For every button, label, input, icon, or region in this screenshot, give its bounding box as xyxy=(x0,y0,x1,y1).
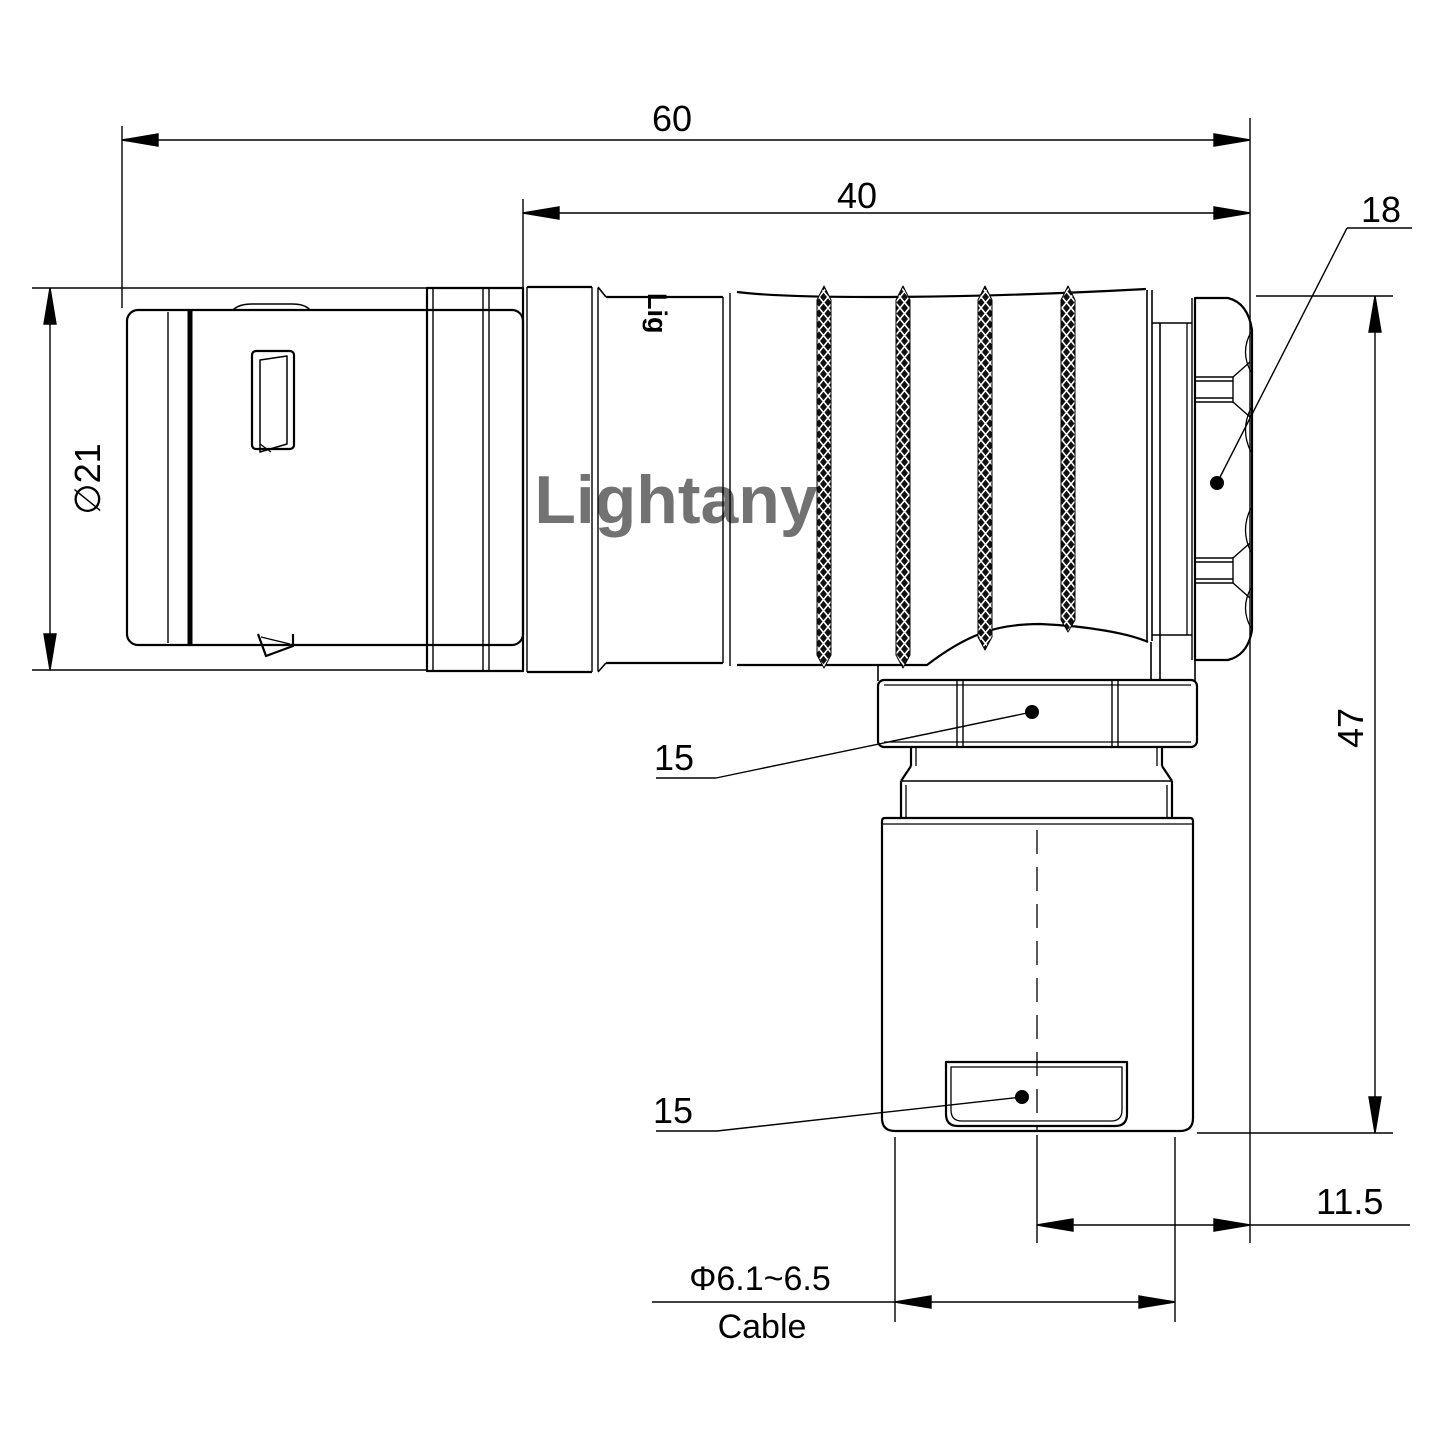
dimension-rear-length xyxy=(523,199,1250,287)
label-cable-range: Φ6.1~6.5 xyxy=(689,1260,831,1298)
leader-coupling-flats-bottom xyxy=(656,1090,1029,1131)
dimension-overall-length xyxy=(122,126,1250,308)
knurled-back-nut xyxy=(1192,298,1252,681)
label-body-diameter: ∅21 xyxy=(67,443,108,514)
label-nut-diameter: 18 xyxy=(1361,189,1401,230)
watermark-text: Lightany xyxy=(534,462,818,538)
label-coupling-flats-top: 15 xyxy=(654,737,694,778)
technical-drawing-page: Lightany xyxy=(0,0,1440,1440)
knurl-band xyxy=(896,286,910,668)
cable-body xyxy=(882,818,1193,1131)
coupling-flange xyxy=(427,288,523,671)
knurl-band xyxy=(978,286,992,650)
label-height: 47 xyxy=(1330,708,1371,748)
barrel-logo-text: Lig xyxy=(642,293,672,334)
nut-groove xyxy=(1195,362,1250,417)
knurl-band xyxy=(1061,286,1075,632)
label-exit-offset: 11.5 xyxy=(1316,1181,1383,1222)
leader-nut-diameter xyxy=(1210,228,1412,490)
connector-dimension-drawing: Lightany xyxy=(0,0,1440,1440)
plug-sleeve xyxy=(127,310,523,645)
nut-groove xyxy=(1195,543,1250,598)
label-coupling-flats-bottom: 15 xyxy=(653,1090,693,1131)
label-rear-length: 40 xyxy=(837,175,877,216)
label-overall-length: 60 xyxy=(652,98,692,139)
key-slot xyxy=(252,351,294,452)
elbow-neck xyxy=(901,747,1172,818)
label-cable: Cable xyxy=(718,1308,807,1346)
knurl-bands xyxy=(817,286,1075,668)
nut-collar xyxy=(1152,323,1192,681)
knurl-band xyxy=(817,286,831,668)
